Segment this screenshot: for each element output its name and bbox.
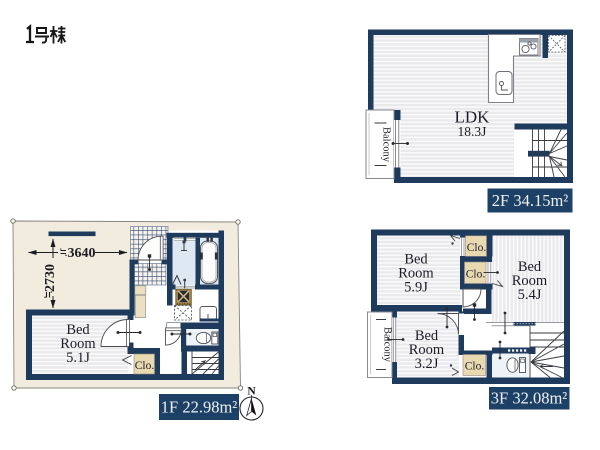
svg-text:18.3J: 18.3J bbox=[458, 124, 487, 139]
svg-text:Balcony: Balcony bbox=[382, 327, 393, 363]
svg-text:1F 22.98m²: 1F 22.98m² bbox=[161, 398, 238, 417]
svg-text:5.9J: 5.9J bbox=[404, 280, 428, 296]
svg-text:Clo.: Clo. bbox=[135, 360, 155, 372]
svg-text:2730: 2730 bbox=[43, 264, 58, 292]
svg-text:N: N bbox=[247, 386, 256, 398]
svg-text:Clo.: Clo. bbox=[467, 242, 487, 254]
svg-text:3F 32.08m²: 3F 32.08m² bbox=[491, 389, 568, 408]
svg-text:2F 34.15m²: 2F 34.15m² bbox=[492, 191, 569, 210]
svg-text:Clo.: Clo. bbox=[465, 361, 485, 373]
svg-text:Clo.: Clo. bbox=[466, 269, 486, 281]
svg-text:3640: 3640 bbox=[68, 246, 96, 261]
svg-text:5.1J: 5.1J bbox=[66, 350, 90, 366]
svg-text:Balcony: Balcony bbox=[381, 127, 392, 163]
svg-text:3.2J: 3.2J bbox=[415, 356, 439, 372]
svg-text:5.4J: 5.4J bbox=[518, 287, 542, 303]
